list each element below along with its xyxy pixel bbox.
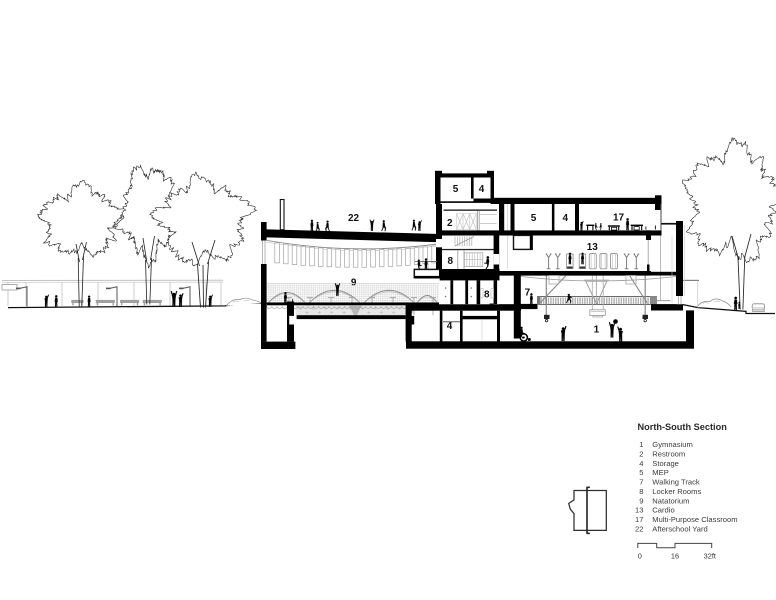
svg-text:4: 4 <box>639 459 643 468</box>
svg-text:7: 7 <box>525 288 531 299</box>
svg-text:0: 0 <box>638 552 642 561</box>
svg-text:1: 1 <box>594 324 600 335</box>
svg-text:Storage: Storage <box>652 459 679 468</box>
svg-text:4: 4 <box>479 184 485 195</box>
svg-text:7: 7 <box>639 478 643 487</box>
svg-text:22: 22 <box>348 213 360 224</box>
svg-text:8: 8 <box>448 256 454 267</box>
svg-text:Natatorium: Natatorium <box>652 496 689 505</box>
svg-text:13: 13 <box>635 506 643 515</box>
svg-text:5: 5 <box>531 213 537 224</box>
svg-text:5: 5 <box>453 184 459 195</box>
svg-text:4: 4 <box>563 213 569 224</box>
svg-text:North-South Section: North-South Section <box>638 422 728 432</box>
svg-text:16: 16 <box>671 552 679 561</box>
svg-text:32ft: 32ft <box>704 552 716 561</box>
svg-text:Walking Track: Walking Track <box>652 478 700 487</box>
svg-text:8: 8 <box>484 289 490 300</box>
svg-text:9: 9 <box>639 496 643 505</box>
svg-text:17: 17 <box>635 515 643 524</box>
svg-text:1: 1 <box>639 440 643 449</box>
svg-text:13: 13 <box>587 242 599 253</box>
svg-text:2: 2 <box>639 449 643 458</box>
svg-text:MEP: MEP <box>652 468 668 477</box>
svg-text:Restroom: Restroom <box>652 449 685 458</box>
svg-text:17: 17 <box>613 213 625 224</box>
svg-text:Locker Rooms: Locker Rooms <box>652 487 701 496</box>
svg-text:8: 8 <box>639 487 643 496</box>
svg-text:Cardio: Cardio <box>652 506 674 515</box>
svg-text:4: 4 <box>447 321 453 332</box>
svg-text:Afterschool Yard: Afterschool Yard <box>652 524 707 533</box>
svg-text:2: 2 <box>447 218 453 229</box>
svg-text:Gymnasium: Gymnasium <box>652 440 693 449</box>
svg-text:Multi-Purpose Classroom: Multi-Purpose Classroom <box>652 515 737 524</box>
svg-text:5: 5 <box>639 468 643 477</box>
svg-text:22: 22 <box>635 524 643 533</box>
